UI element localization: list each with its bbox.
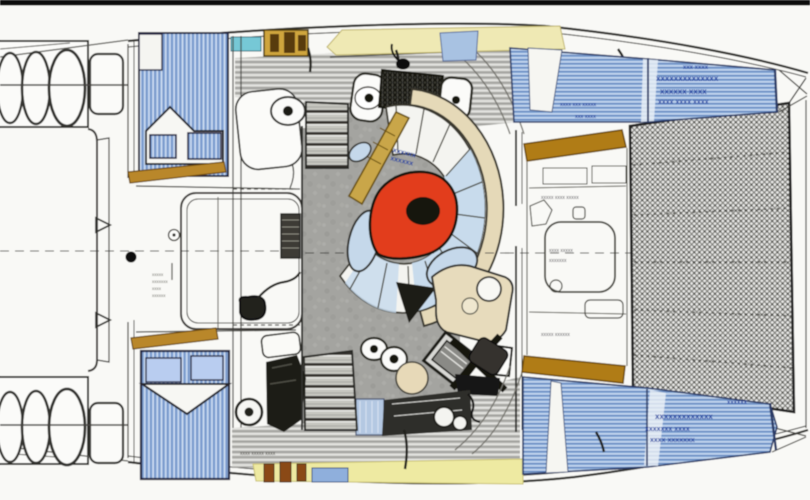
svg-text:xxxx xxxxx xxxx: xxxx xxxxx xxxx (240, 451, 276, 457)
svg-text:xxxxxx: xxxxxx (152, 293, 166, 298)
svg-text:xxxxxxxxxxxxx: xxxxxxxxxxxxx (655, 412, 713, 421)
svg-text:xxxx xxxxx: xxxx xxxxx (549, 248, 573, 254)
svg-text:xxxx xxxx xxxx: xxxx xxxx xxxx (658, 99, 709, 106)
svg-text:xxx xxxx: xxx xxxx (683, 65, 709, 71)
svg-text:xxxxx xxxx xxxxx: xxxxx xxxx xxxxx (541, 195, 579, 201)
svg-text:xxxxx xxxxxx: xxxxx xxxxxx (541, 332, 570, 338)
svg-text:xxxxxxx xxxx: xxxxxxx xxxx (645, 426, 690, 433)
svg-text:xxxxxx: xxxxxx (727, 400, 748, 406)
svg-text:xxxxx: xxxxx (152, 272, 164, 277)
svg-text:xxx xxxx: xxx xxxx (575, 114, 596, 120)
svg-text:xxxx xxxxxxx: xxxx xxxxxxx (650, 437, 695, 444)
svg-text:xxxxxx xxxx: xxxxxx xxxx (660, 87, 707, 96)
svg-text:xxxx xxx xxxxx: xxxx xxx xxxxx (560, 102, 596, 108)
svg-text:xxxxxxx: xxxxxxx (549, 258, 567, 264)
svg-text:xxxxxxxxxxxxxx: xxxxxxxxxxxxxx (656, 74, 719, 83)
svg-text:xxxx: xxxx (152, 286, 162, 291)
svg-text:xxxxxxx: xxxxxxx (152, 279, 169, 284)
